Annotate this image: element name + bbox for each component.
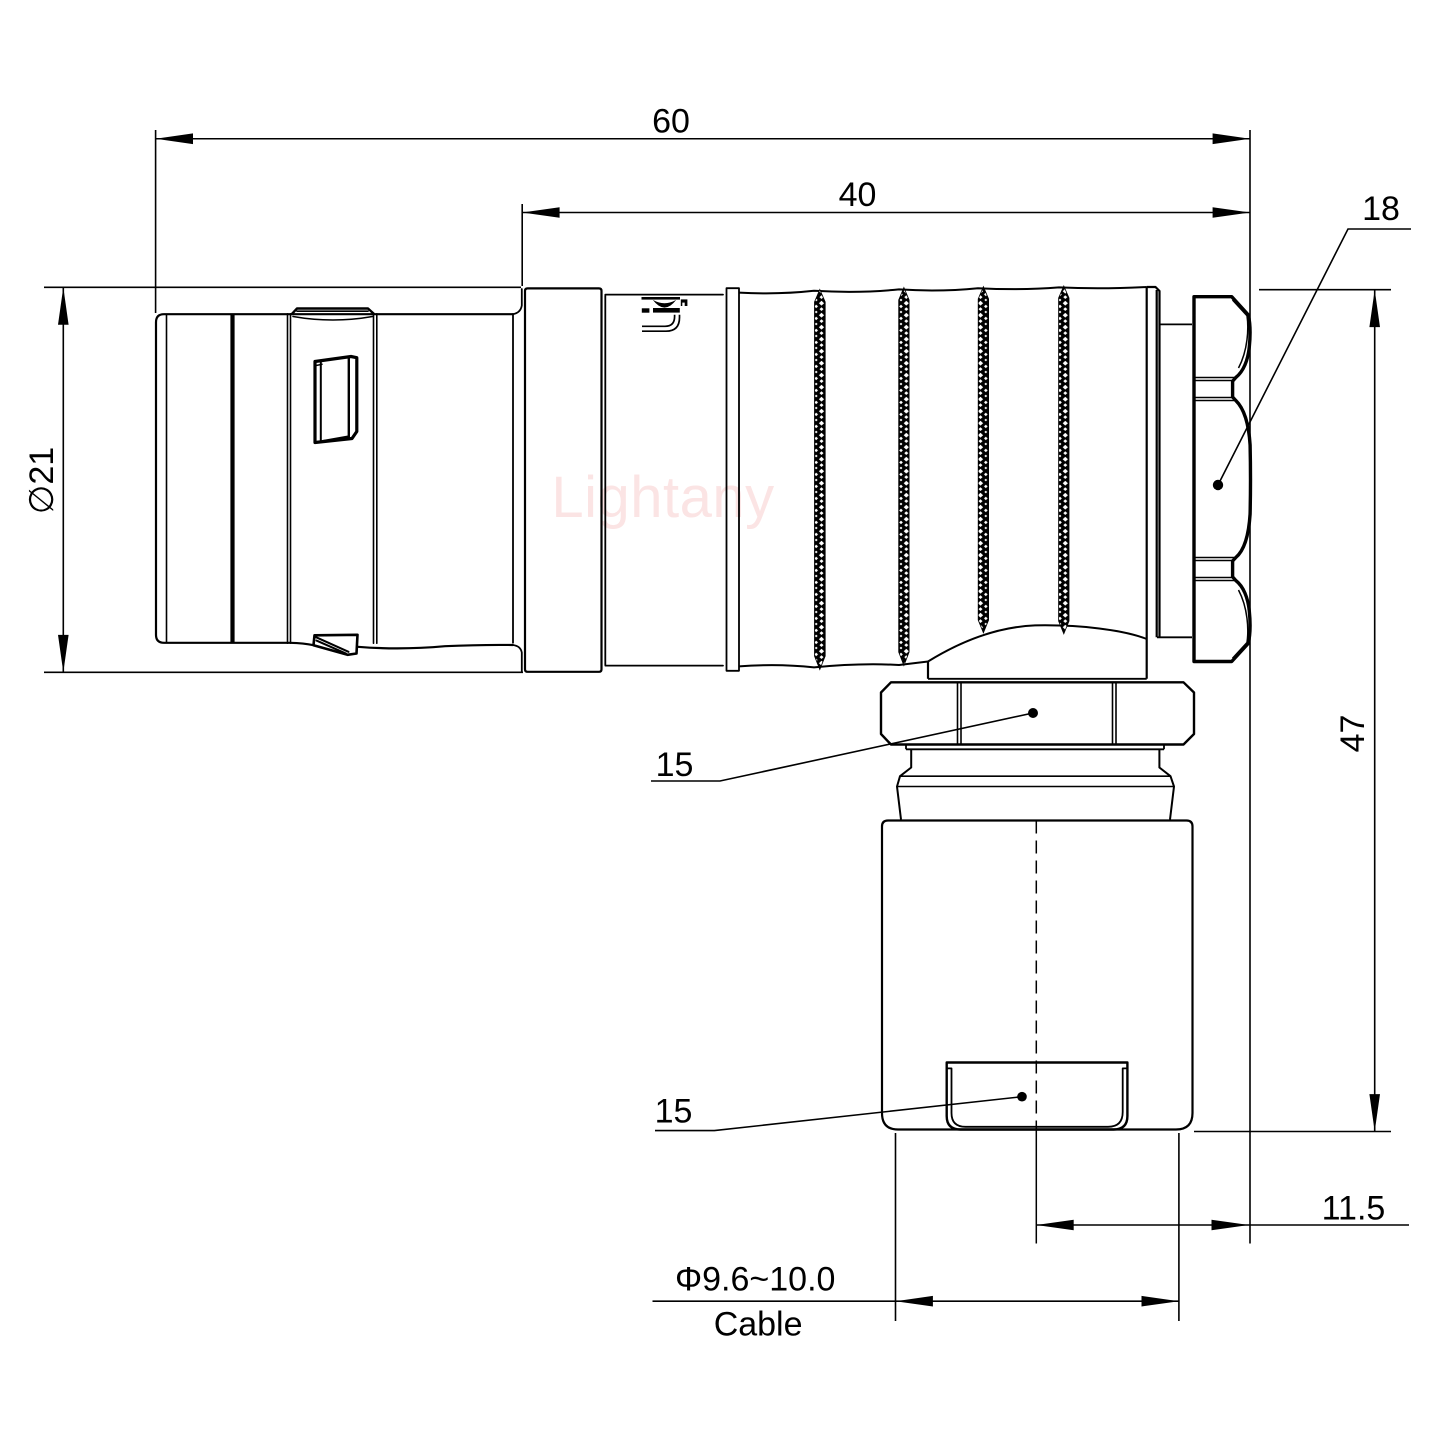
- svg-text:Lightany: Lightany: [551, 465, 774, 530]
- svg-text:18: 18: [1362, 190, 1400, 228]
- svg-text:15: 15: [656, 746, 694, 784]
- svg-text:15: 15: [655, 1093, 693, 1131]
- svg-text:Φ9.6~10.0: Φ9.6~10.0: [675, 1261, 835, 1299]
- svg-text:40: 40: [839, 176, 877, 214]
- svg-text:∅21: ∅21: [23, 447, 61, 514]
- svg-text:Cable: Cable: [714, 1306, 803, 1344]
- svg-text:60: 60: [652, 103, 690, 141]
- svg-text:11.5: 11.5: [1322, 1190, 1386, 1228]
- svg-text:47: 47: [1334, 715, 1372, 753]
